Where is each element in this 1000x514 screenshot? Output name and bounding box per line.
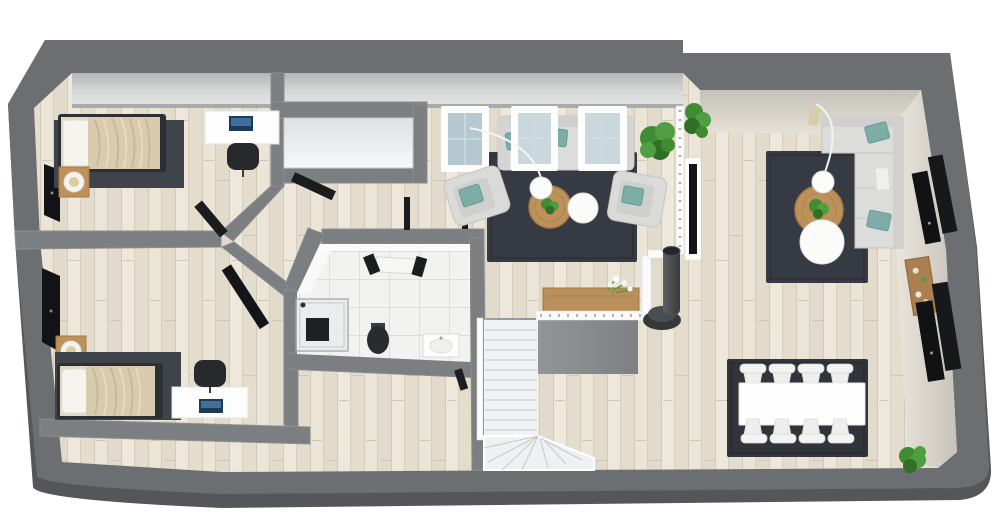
tv-board bbox=[685, 158, 701, 260]
wall-closet-right bbox=[413, 104, 427, 183]
roof-window-3 bbox=[578, 106, 627, 171]
bathroom bbox=[296, 244, 470, 362]
closet-floor bbox=[284, 118, 413, 168]
stair-railing-left bbox=[477, 318, 483, 440]
roof-window-2 bbox=[511, 106, 558, 171]
wall-bedroom-divider bbox=[15, 231, 221, 249]
roof-window-1 bbox=[441, 106, 489, 172]
wall-closet-top bbox=[271, 102, 427, 118]
bed bbox=[57, 363, 163, 419]
sink bbox=[423, 334, 459, 357]
door-frame-strip-1 bbox=[404, 197, 410, 230]
floorplan-canvas bbox=[0, 0, 1000, 514]
shower-column bbox=[306, 318, 329, 341]
wall-bath-top bbox=[322, 229, 484, 244]
floorplan-render bbox=[0, 0, 1000, 514]
sectional-pillow-white bbox=[875, 167, 890, 190]
bathroom-wall-top-face bbox=[322, 244, 470, 251]
tv-screen bbox=[689, 164, 697, 254]
ottoman-white bbox=[800, 220, 844, 264]
side-table-white bbox=[568, 193, 598, 223]
bed bbox=[58, 114, 166, 172]
desk bbox=[205, 111, 279, 144]
armchair-pillow-teal bbox=[621, 186, 644, 206]
nightstand bbox=[59, 167, 89, 197]
stove-flue-top bbox=[663, 247, 680, 256]
shower bbox=[296, 299, 348, 351]
armchair-right bbox=[606, 170, 668, 229]
